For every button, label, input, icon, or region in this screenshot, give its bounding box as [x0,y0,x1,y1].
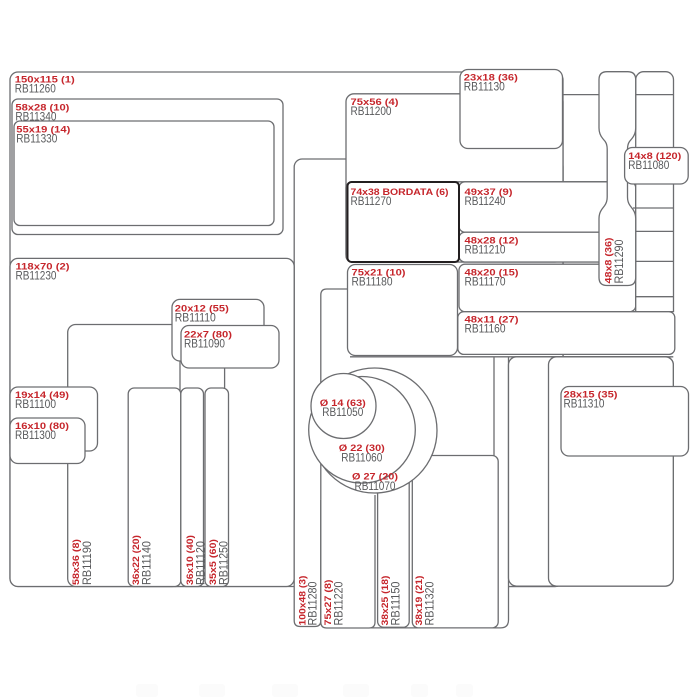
svg-text:RB11170: RB11170 [465,275,506,289]
svg-text:RB11190: RB11190 [80,541,94,585]
svg-text:RB11290: RB11290 [612,239,626,283]
svg-text:RB11150: RB11150 [388,581,402,625]
svg-text:RB11250: RB11250 [217,541,231,585]
svg-text:RB11050: RB11050 [322,405,363,419]
svg-text:RB11270: RB11270 [351,194,392,208]
svg-text:RB11100: RB11100 [15,397,56,411]
svg-text:RB11320: RB11320 [422,581,436,625]
svg-text:RB11160: RB11160 [465,322,506,336]
svg-text:RB11220: RB11220 [331,581,345,625]
svg-text:RB11330: RB11330 [16,132,57,146]
svg-text:RB11180: RB11180 [352,275,393,289]
svg-text:RB11240: RB11240 [465,194,506,208]
svg-text:RB11200: RB11200 [351,104,392,118]
svg-text:RB11230: RB11230 [16,269,57,283]
svg-text:RB11340: RB11340 [15,110,56,124]
svg-text:RB11280: RB11280 [306,581,320,625]
svg-text:RB11310: RB11310 [564,397,605,411]
svg-text:RB11140: RB11140 [140,541,154,585]
svg-text:RB11110: RB11110 [175,311,216,325]
svg-text:RB11120: RB11120 [194,541,208,585]
svg-text:RB11130: RB11130 [464,80,505,94]
svg-text:RB11070: RB11070 [355,479,396,493]
svg-text:RB11260: RB11260 [15,82,56,96]
svg-text:RB11080: RB11080 [628,158,669,172]
svg-text:RB11210: RB11210 [465,243,506,257]
svg-text:RB11090: RB11090 [184,337,225,351]
svg-text:RB11300: RB11300 [15,428,56,442]
svg-text:RB11060: RB11060 [341,450,382,464]
